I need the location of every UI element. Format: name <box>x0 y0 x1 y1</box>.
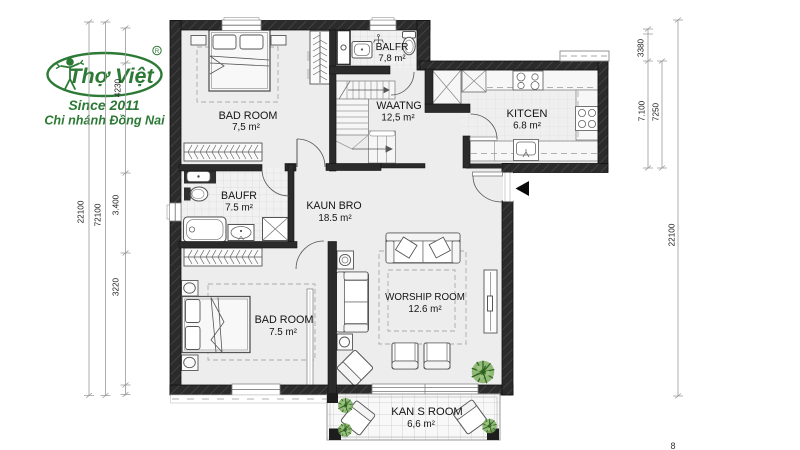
svg-text:Thợ Việt: Thợ Việt <box>68 64 154 88</box>
svg-text:Since 2011: Since 2011 <box>68 97 140 113</box>
svg-text:3.400: 3.400 <box>112 194 121 215</box>
svg-text:BAD ROOM: BAD ROOM <box>219 110 278 122</box>
svg-text:3380: 3380 <box>637 38 646 57</box>
svg-text:7.5 m²: 7.5 m² <box>225 203 254 214</box>
svg-text:12.6 m²: 12.6 m² <box>408 304 442 315</box>
svg-text:7,8 m²: 7,8 m² <box>378 53 406 64</box>
svg-text:7250: 7250 <box>652 102 661 121</box>
svg-text:8: 8 <box>670 441 675 450</box>
svg-text:BAUFR: BAUFR <box>221 190 257 202</box>
svg-text:4230: 4230 <box>114 78 123 97</box>
svg-text:KAN S ROOM: KAN S ROOM <box>391 406 462 418</box>
svg-text:12,5 m²: 12,5 m² <box>381 113 415 124</box>
svg-text:6,6 m²: 6,6 m² <box>407 419 436 430</box>
svg-text:Chi nhánh Đồng Nai: Chi nhánh Đồng Nai <box>44 114 165 128</box>
svg-text:7.100: 7.100 <box>638 100 647 121</box>
svg-text:22100: 22100 <box>668 223 677 246</box>
svg-text:3220: 3220 <box>112 277 121 296</box>
svg-text:WAATNG: WAATNG <box>376 100 421 112</box>
svg-text:WORSHIP ROOM: WORSHIP ROOM <box>385 292 465 303</box>
svg-text:7,5 m²: 7,5 m² <box>232 122 261 133</box>
svg-text:BAD ROOM: BAD ROOM <box>255 314 314 326</box>
svg-text:R: R <box>155 49 160 55</box>
svg-text:7.5 m²: 7.5 m² <box>269 327 298 338</box>
svg-text:KITCEN: KITCEN <box>506 108 547 120</box>
svg-text:18.5 m²: 18.5 m² <box>318 213 352 224</box>
svg-text:BALFR: BALFR <box>376 42 409 53</box>
svg-text:22100: 22100 <box>77 200 86 223</box>
svg-text:KAUN BRO: KAUN BRO <box>306 200 361 212</box>
svg-text:72100: 72100 <box>94 203 103 226</box>
svg-text:6.8 m²: 6.8 m² <box>513 121 542 132</box>
